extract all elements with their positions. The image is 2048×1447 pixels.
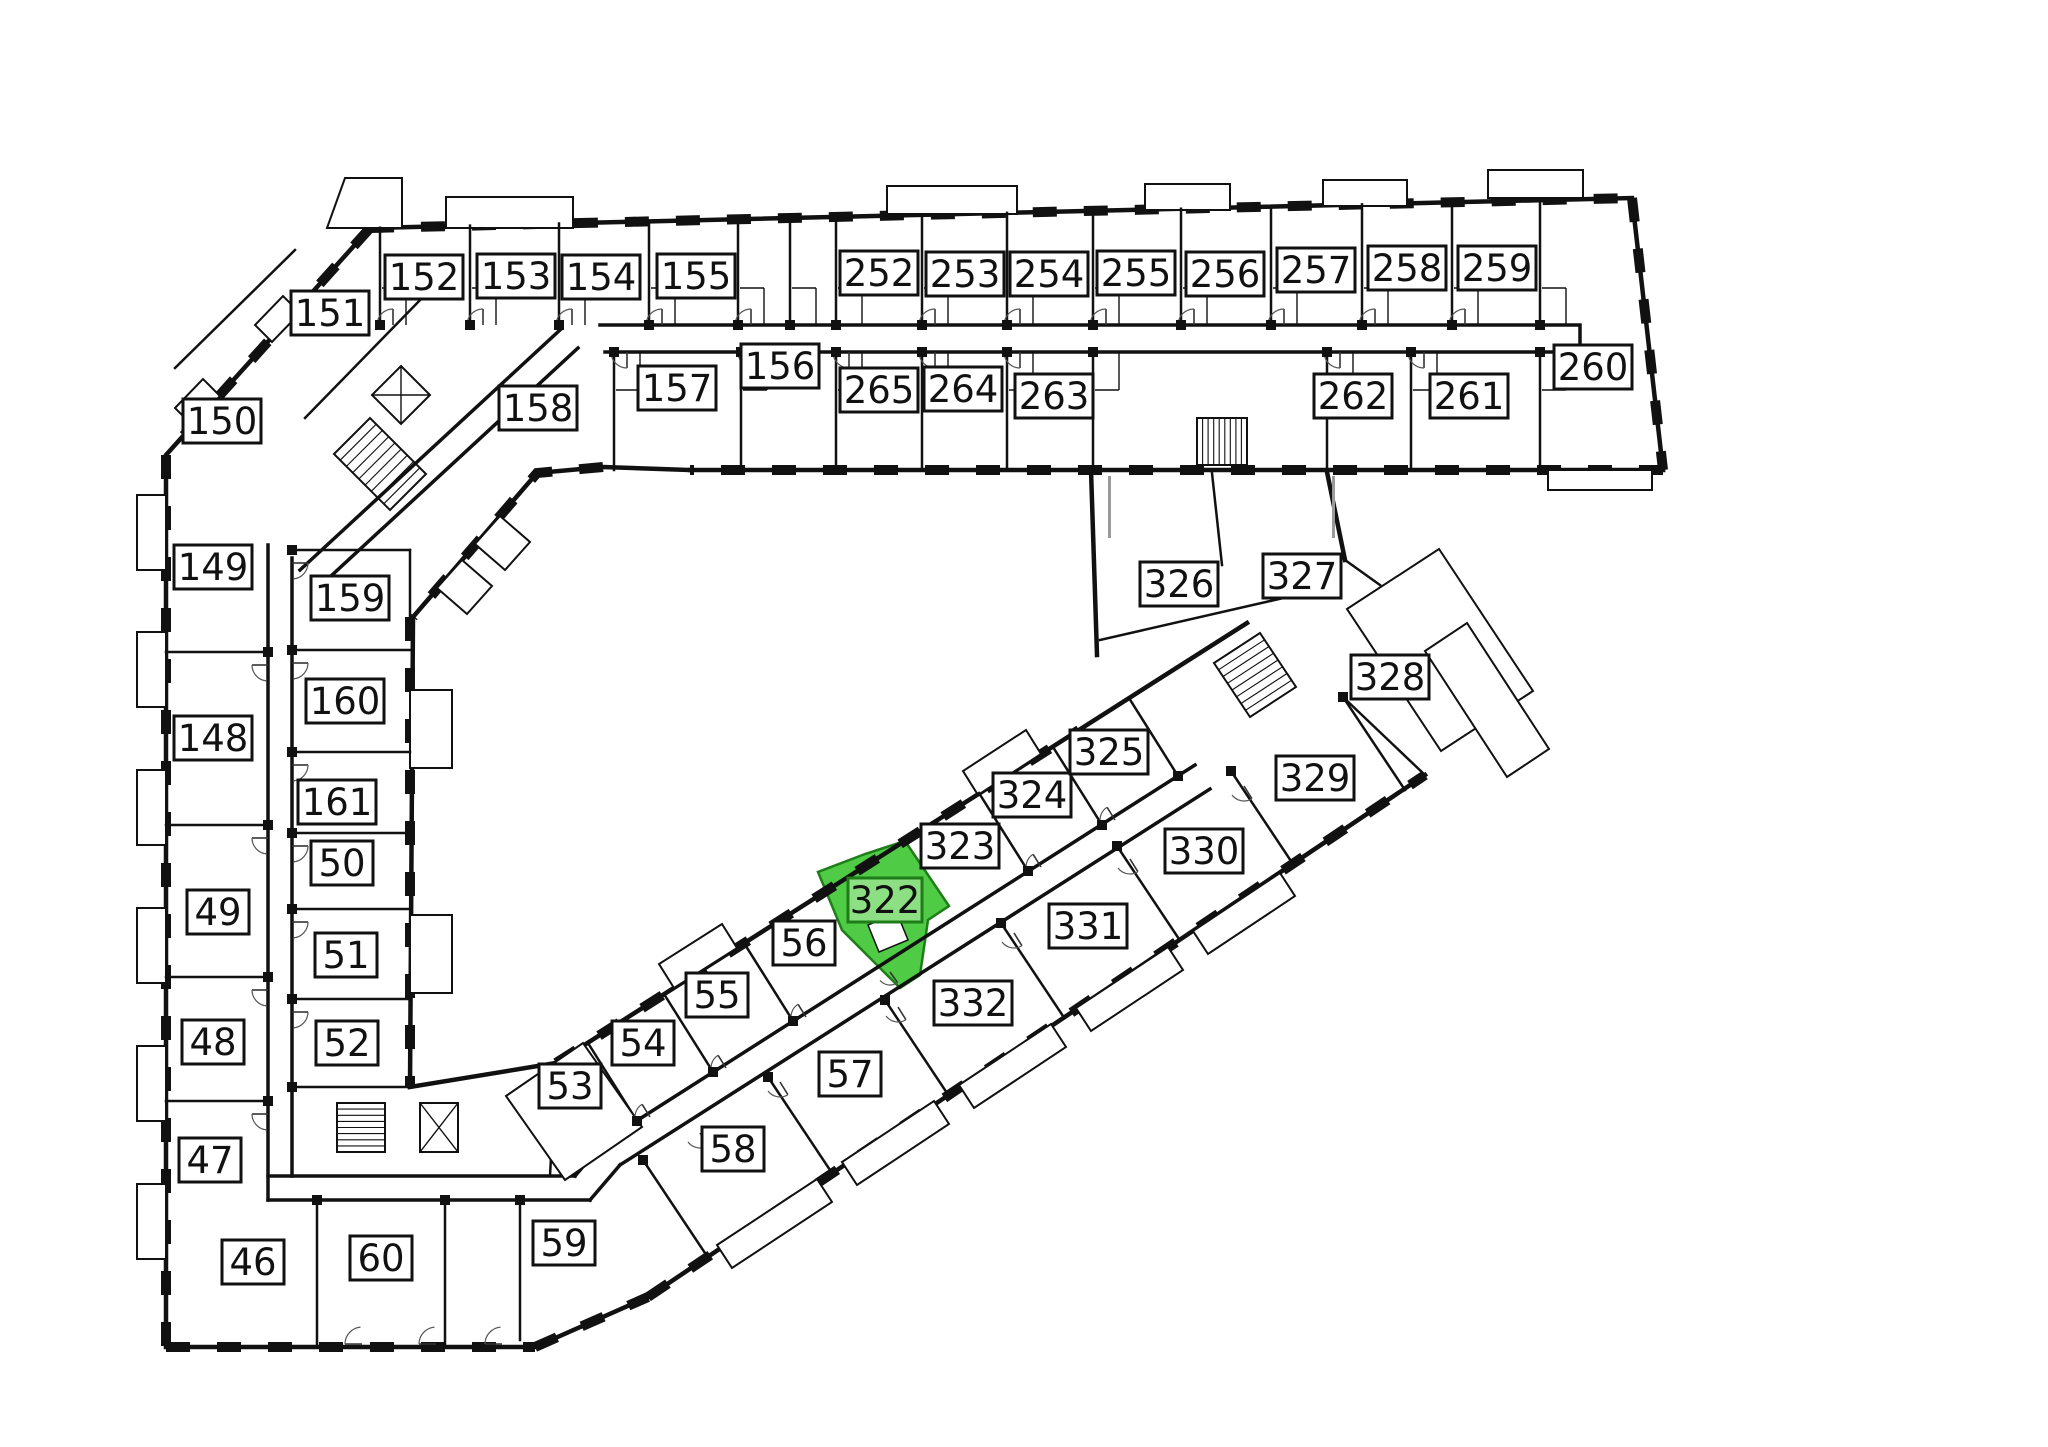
room-label-57: 57: [819, 1052, 881, 1096]
svg-text:49: 49: [194, 891, 241, 934]
annotation-mark: [1108, 476, 1111, 538]
room-label-255: 255: [1097, 251, 1175, 295]
svg-text:263: 263: [1019, 375, 1090, 418]
svg-text:56: 56: [780, 922, 827, 965]
svg-text:157: 157: [642, 367, 713, 410]
svg-text:149: 149: [178, 546, 249, 589]
svg-text:254: 254: [1014, 253, 1085, 296]
room-label-252: 252: [840, 251, 918, 295]
svg-text:54: 54: [619, 1022, 666, 1065]
room-label-156: 156: [741, 344, 819, 388]
svg-text:262: 262: [1318, 375, 1389, 418]
svg-text:330: 330: [1169, 830, 1240, 873]
svg-text:46: 46: [229, 1241, 276, 1284]
svg-text:252: 252: [844, 252, 915, 295]
room-label-265: 265: [840, 368, 918, 412]
svg-text:161: 161: [302, 781, 373, 824]
diagonal-wing-walls: [506, 697, 1405, 1253]
svg-text:155: 155: [661, 255, 732, 298]
svg-text:322: 322: [850, 879, 921, 922]
room-label-254: 254: [1010, 252, 1088, 296]
svg-text:324: 324: [997, 774, 1068, 817]
svg-text:258: 258: [1372, 247, 1443, 290]
svg-text:47: 47: [186, 1139, 233, 1182]
room-label-262: 262: [1314, 374, 1392, 418]
room-label-155: 155: [657, 254, 735, 298]
svg-text:154: 154: [566, 256, 637, 299]
room-label-148: 148: [174, 716, 252, 760]
svg-text:329: 329: [1280, 757, 1351, 800]
svg-text:57: 57: [826, 1053, 873, 1096]
room-label-253: 253: [926, 252, 1004, 296]
svg-text:259: 259: [1462, 247, 1533, 290]
svg-text:150: 150: [187, 400, 258, 443]
svg-text:55: 55: [693, 974, 740, 1017]
svg-text:58: 58: [709, 1128, 756, 1171]
svg-text:51: 51: [322, 934, 369, 977]
room-label-259: 259: [1458, 246, 1536, 290]
svg-text:325: 325: [1074, 731, 1145, 774]
room-label-322[interactable]: 322: [848, 878, 922, 922]
room-label-51: 51: [315, 933, 377, 977]
room-label-59: 59: [533, 1221, 595, 1265]
room-label-323: 323: [921, 824, 999, 868]
svg-text:60: 60: [357, 1237, 404, 1280]
svg-text:48: 48: [189, 1021, 236, 1064]
room-label-158: 158: [499, 386, 577, 430]
room-label-258: 258: [1368, 246, 1446, 290]
room-label-330: 330: [1165, 829, 1243, 873]
svg-text:152: 152: [389, 256, 460, 299]
room-label-331: 331: [1049, 904, 1127, 948]
room-label-154: 154: [562, 255, 640, 299]
room-label-159: 159: [311, 576, 389, 620]
svg-text:59: 59: [540, 1222, 587, 1265]
room-label-56: 56: [773, 921, 835, 965]
svg-text:52: 52: [323, 1022, 370, 1065]
terrace: [1548, 470, 1652, 490]
floor-plan-page: 1521531541551511501561571581491591601481…: [0, 0, 2048, 1447]
svg-text:255: 255: [1101, 252, 1172, 295]
svg-text:257: 257: [1281, 249, 1352, 292]
room-label-54: 54: [612, 1021, 674, 1065]
annotation-mark: [1332, 476, 1335, 538]
connector-walls: [1100, 473, 1549, 777]
room-label-60: 60: [350, 1236, 412, 1280]
room-label-53: 53: [539, 1064, 601, 1108]
svg-text:331: 331: [1053, 905, 1124, 948]
room-label-152: 152: [385, 255, 463, 299]
room-label-46: 46: [222, 1240, 284, 1284]
svg-text:332: 332: [938, 982, 1009, 1025]
stairs: [334, 366, 1296, 1152]
svg-text:151: 151: [295, 292, 366, 335]
svg-text:160: 160: [310, 680, 381, 723]
room-label-329: 329: [1276, 756, 1354, 800]
room-label-149: 149: [174, 545, 252, 589]
svg-text:328: 328: [1355, 656, 1426, 699]
room-label-328: 328: [1351, 655, 1429, 699]
room-label-327: 327: [1263, 554, 1341, 598]
svg-text:265: 265: [844, 369, 915, 412]
svg-text:156: 156: [745, 345, 816, 388]
room-label-325: 325: [1070, 730, 1148, 774]
room-label-151: 151: [291, 291, 369, 335]
room-label-50: 50: [311, 841, 373, 885]
floor-plan: 1521531541551511501561571581491591601481…: [0, 0, 2048, 1447]
svg-text:264: 264: [928, 368, 999, 411]
room-label-52: 52: [316, 1021, 378, 1065]
svg-text:323: 323: [925, 825, 996, 868]
room-label-150: 150: [183, 399, 261, 443]
room-label-261: 261: [1430, 374, 1508, 418]
room-label-153: 153: [477, 254, 555, 298]
svg-text:256: 256: [1190, 253, 1261, 296]
room-label-324: 324: [993, 773, 1071, 817]
room-label-264: 264: [924, 367, 1002, 411]
room-label-257: 257: [1277, 248, 1355, 292]
room-label-256: 256: [1186, 252, 1264, 296]
svg-text:53: 53: [546, 1065, 593, 1108]
stairwell-lobby: [1197, 418, 1247, 465]
room-label-332: 332: [934, 981, 1012, 1025]
room-label-260: 260: [1554, 345, 1632, 389]
room-label-161: 161: [298, 780, 376, 824]
room-label-58: 58: [702, 1127, 764, 1171]
svg-text:253: 253: [930, 253, 1001, 296]
room-label-157: 157: [638, 366, 716, 410]
svg-text:327: 327: [1267, 555, 1338, 598]
entrance-canopy: [327, 178, 402, 228]
svg-text:159: 159: [315, 577, 386, 620]
room-label-263: 263: [1015, 374, 1093, 418]
corridor-walls: [268, 325, 1580, 1200]
svg-text:158: 158: [503, 387, 574, 430]
room-label-160: 160: [306, 679, 384, 723]
svg-text:260: 260: [1558, 346, 1629, 389]
room-label-48: 48: [182, 1020, 244, 1064]
room-label-55: 55: [686, 973, 748, 1017]
room-label-326: 326: [1140, 562, 1218, 606]
svg-text:326: 326: [1144, 563, 1215, 606]
svg-text:148: 148: [178, 717, 249, 760]
svg-text:50: 50: [318, 842, 365, 885]
svg-text:153: 153: [481, 255, 552, 298]
svg-text:261: 261: [1434, 375, 1505, 418]
room-label-47: 47: [179, 1138, 241, 1182]
door-arcs: [252, 309, 1465, 1344]
room-label-49: 49: [187, 890, 249, 934]
